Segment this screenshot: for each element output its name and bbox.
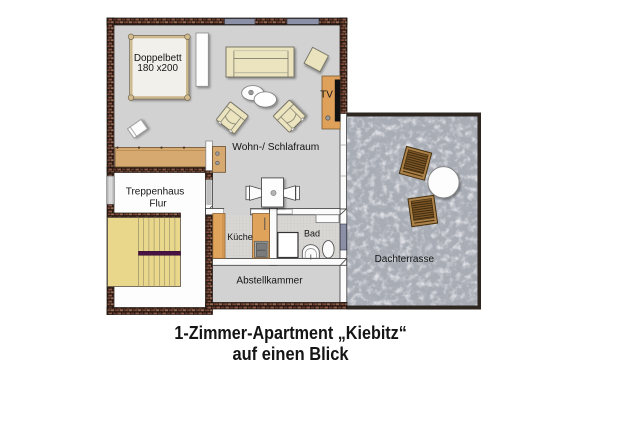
svg-text:TV: TV xyxy=(320,90,333,101)
svg-text:Bad: Bad xyxy=(304,228,320,238)
svg-text:Dachterrasse: Dachterrasse xyxy=(375,254,435,265)
svg-text:1-Zimmer-Apartment „Kiebitz“: 1-Zimmer-Apartment „Kiebitz“ xyxy=(174,322,407,343)
svg-text:Wohn-/ Schlafraum: Wohn-/ Schlafraum xyxy=(232,142,319,153)
svg-text:Abstellkammer: Abstellkammer xyxy=(236,276,303,287)
svg-text:180 x200: 180 x200 xyxy=(137,63,178,74)
svg-text:auf einen Blick: auf einen Blick xyxy=(233,343,350,364)
svg-text:Küche: Küche xyxy=(227,232,253,242)
svg-text:Treppenhaus: Treppenhaus xyxy=(126,187,185,198)
svg-text:Flur: Flur xyxy=(149,198,167,209)
